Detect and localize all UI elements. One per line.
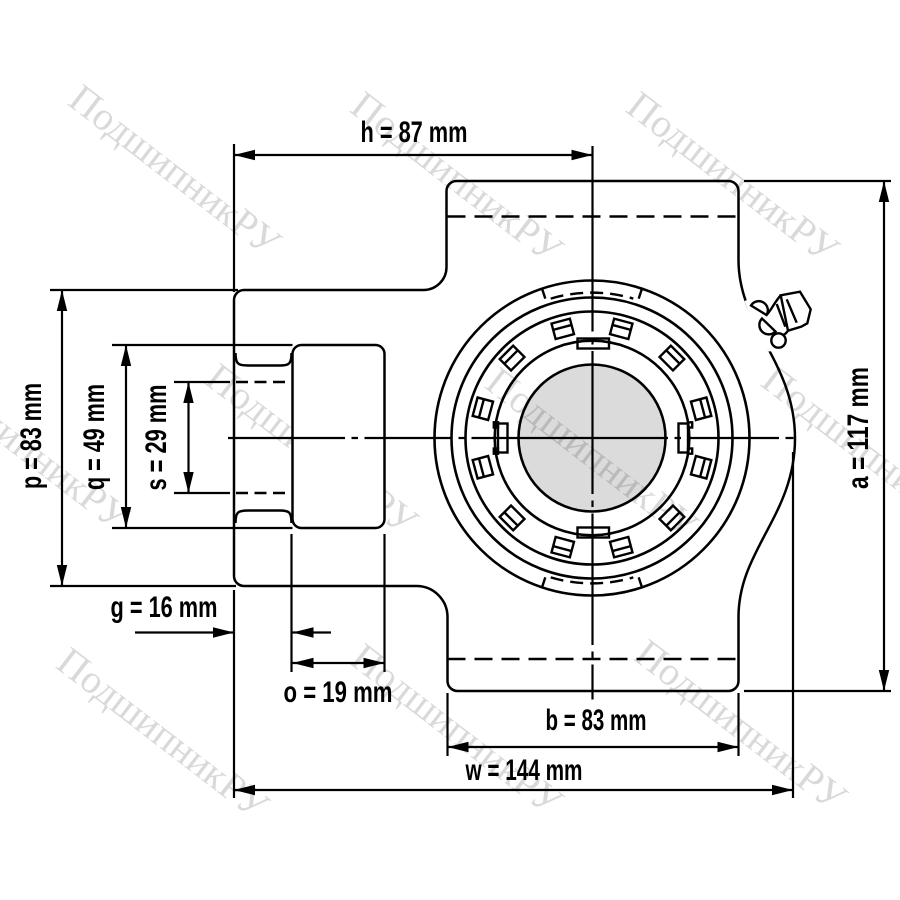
svg-text:o = 19 mm: o = 19 mm <box>284 676 393 709</box>
svg-text:a = 117 mm: a = 117 mm <box>842 367 875 489</box>
svg-text:g = 16 mm: g = 16 mm <box>111 591 218 624</box>
svg-text:s = 29 mm: s = 29 mm <box>140 385 173 491</box>
svg-text:p = 83 mm: p = 83 mm <box>15 383 48 489</box>
svg-text:h = 87 mm: h = 87 mm <box>361 116 468 149</box>
svg-text:w = 144 mm: w = 144 mm <box>465 754 583 787</box>
svg-text:b = 83 mm: b = 83 mm <box>546 704 647 737</box>
svg-text:q = 49 mm: q = 49 mm <box>78 384 111 490</box>
